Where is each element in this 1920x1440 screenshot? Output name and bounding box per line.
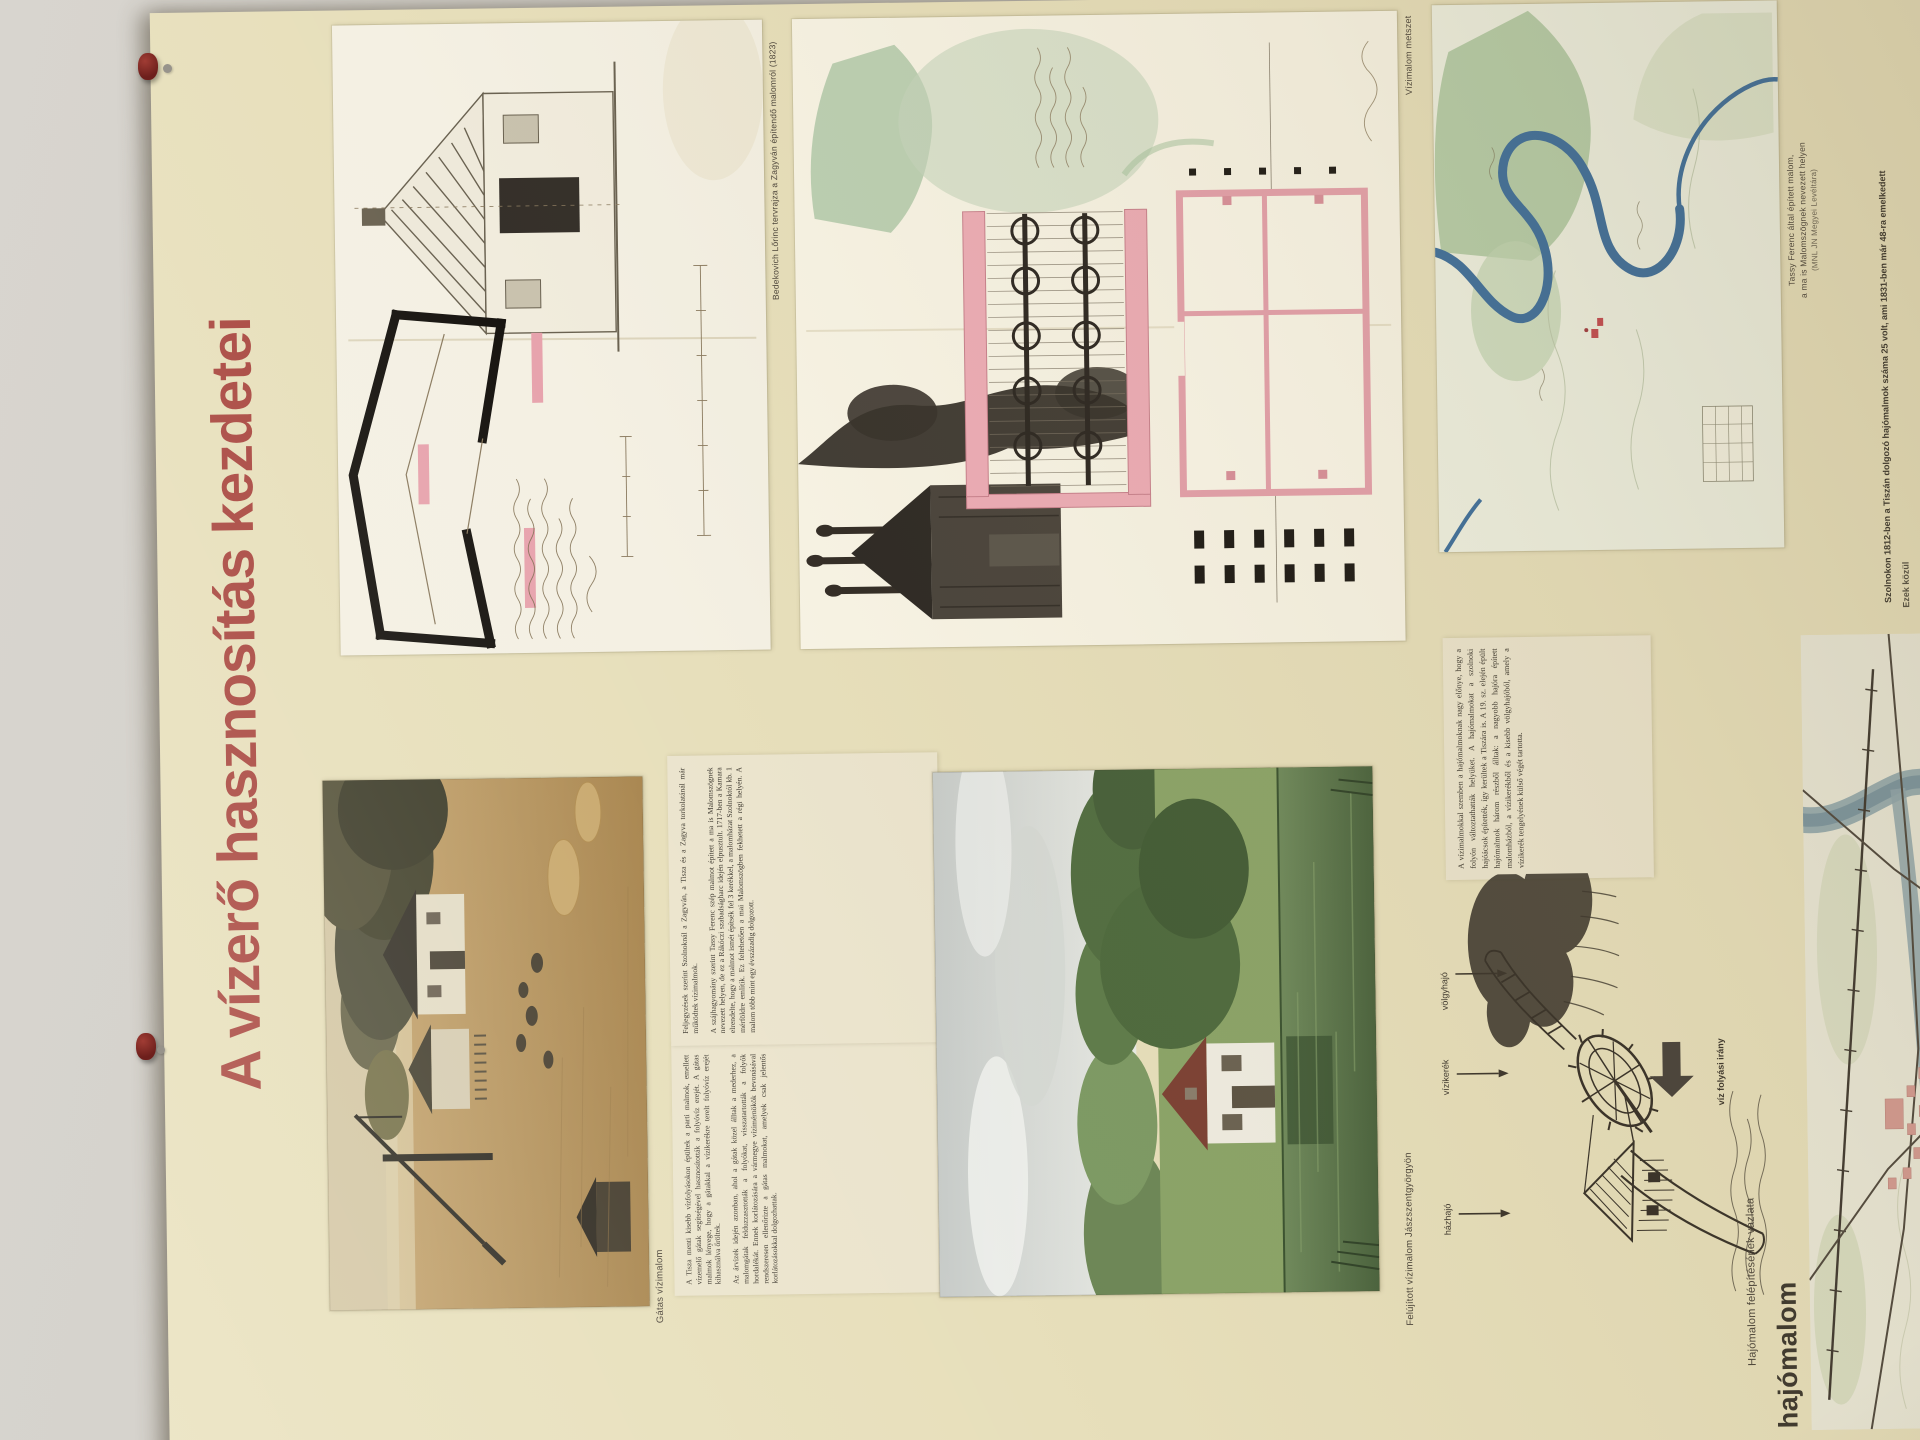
label-valley-boat: völgyhajó [1439,972,1450,1010]
label-flow-direction: víz folyási irány [1715,1038,1726,1105]
ship-mill-sketch [1462,871,1780,1313]
river-map-caption: Tassy Ferenc által épített malom, a ma i… [1784,95,1822,345]
paragraph: Az árvizek idején azonban, ahol a gátak … [729,1053,781,1284]
paragraph: Feljegyzések szerint Szolnoknál a Zagyvá… [677,768,700,1034]
stat-line: Szolnokon 1812-ben a Tiszán dolgozó hajó… [1877,170,1893,603]
rural-photo [322,776,649,1310]
map-legend-table [1702,406,1753,482]
mill-location-marker [1584,318,1603,338]
rural-photo-caption: Gátas vízimalom [654,1249,666,1323]
river-map-panel [1432,0,1785,552]
plan-drawing-caption: Bedekovich Lőrinc tervrajza a Zagyván ép… [767,41,785,649]
city-map [1801,632,1920,1430]
text-column-1: A Tisza menti kisebb vízfolyásokon épült… [671,1040,944,1296]
pond-photo-caption: Felújított vízimalom Jászszentgyörgyön [1403,1152,1416,1326]
pond-photo-art [932,766,1379,1297]
flow-direction-arrow [1641,1041,1702,1098]
mill-section-caption: Vízimalom metszet [1403,16,1419,441]
plan-drawing-art [332,20,771,656]
paragraph: A szájhagyomány szerint Tassy Ferenc szé… [705,767,758,1034]
pond-photo [932,766,1379,1297]
poster-title: A vízerő hasznosítás kezdetei [198,284,276,1125]
push-pin [136,1033,156,1060]
push-pin [138,53,158,80]
mill-section-art [792,11,1406,649]
paragraph: A Tisza menti kisebb vízfolyásokon épült… [681,1054,723,1285]
photo-of-poster: A vízerő hasznosítás kezdetei [0,0,1920,1440]
text-column-2: Feljegyzések szerint Szolnoknál a Zagyvá… [667,752,941,1046]
plan-drawing-panel [332,20,771,656]
ship-mill-sketch-caption: Hajómalom felépítésének vázlata [1744,1198,1758,1366]
wall-speck [163,64,172,73]
label-house-boat: házhajó [1442,1204,1452,1236]
wall-speck [157,1046,165,1054]
ship-mill-text: A vízimalmokkal szemben a hajómalmoknak … [1443,635,1654,880]
stat-line-fragment: Ezek közül [1901,562,1912,608]
rural-photo-art [322,776,649,1310]
label-water-wheel: vízikerék [1440,1060,1450,1096]
poster-sheet: A vízerő hasznosítás kezdetei [150,0,1920,1440]
section-heading: hajómalom [1772,1281,1805,1428]
river-map-art [1432,0,1785,552]
mill-section-panel [792,11,1406,649]
